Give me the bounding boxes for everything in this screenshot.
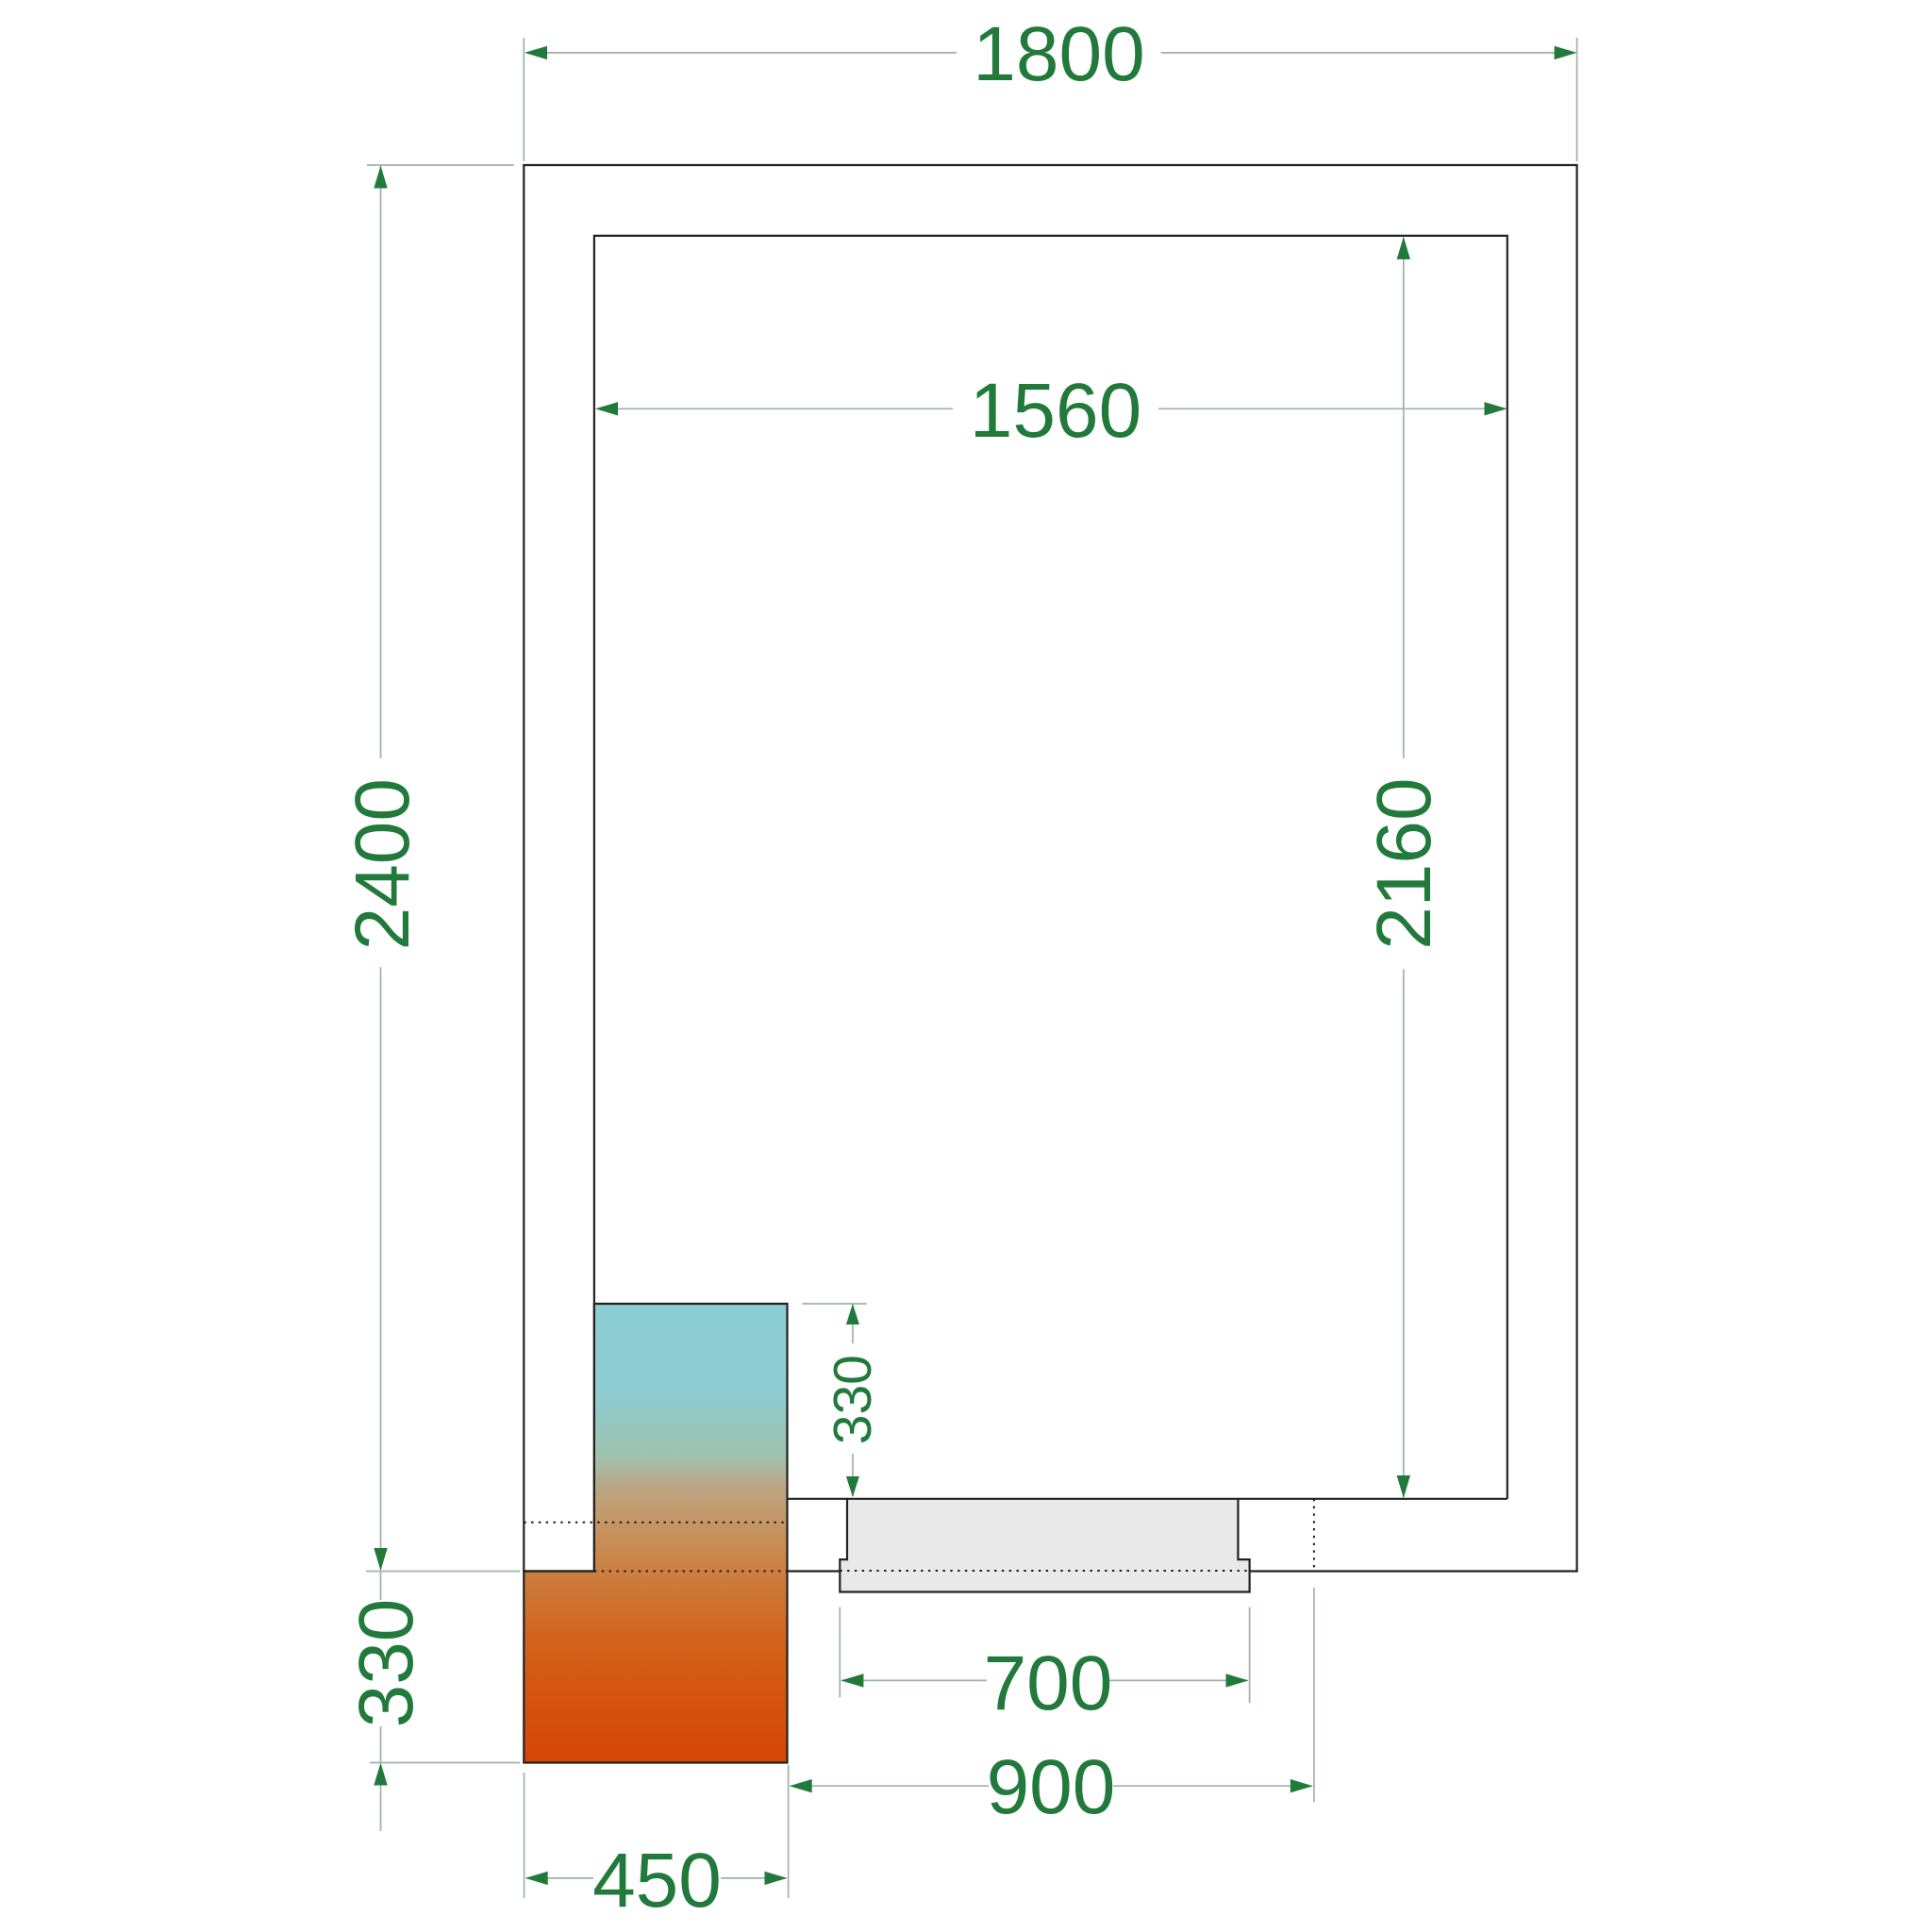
- svg-text:330: 330: [823, 1355, 883, 1444]
- svg-text:700: 700: [984, 1641, 1113, 1726]
- svg-text:2400: 2400: [340, 778, 425, 950]
- svg-text:1560: 1560: [970, 368, 1141, 454]
- svg-text:450: 450: [592, 1838, 722, 1924]
- svg-text:1800: 1800: [973, 11, 1144, 97]
- svg-text:900: 900: [987, 1744, 1116, 1830]
- svg-text:330: 330: [343, 1599, 429, 1728]
- svg-text:2160: 2160: [1361, 777, 1447, 949]
